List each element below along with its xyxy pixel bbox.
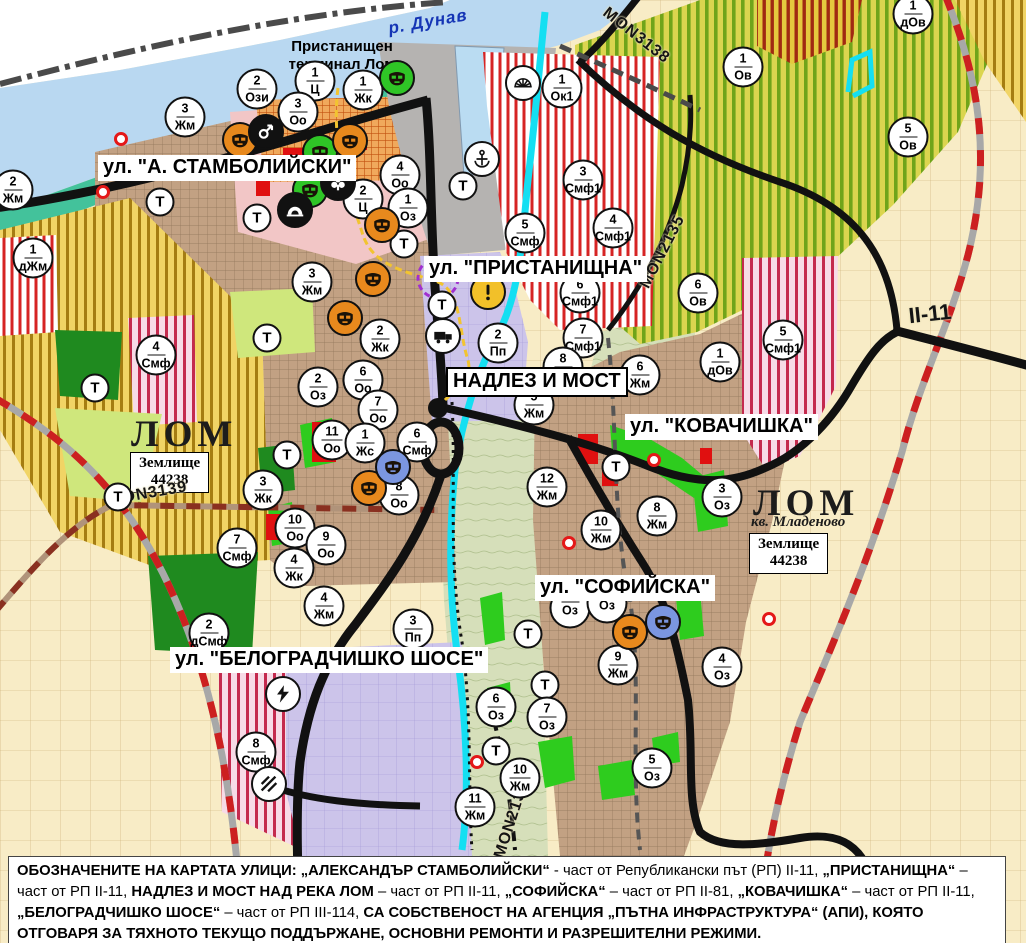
legend-text-segment: – част от РП III-114, (220, 905, 363, 921)
transformer-marker: Т (146, 188, 175, 217)
zone-marker: 5Ов (888, 117, 929, 158)
transformer-marker: Т (602, 453, 631, 482)
lightning-icon (265, 676, 301, 712)
zone-marker: 4Жм (304, 586, 345, 627)
street-label: ул. "БЕЛОГРАДЧИШКО ШОСЕ" (170, 647, 488, 673)
truck-icon (425, 318, 461, 354)
zone-marker: 3Жк (243, 470, 284, 511)
fan-icon (505, 65, 541, 101)
transformer-marker: Т (243, 204, 272, 233)
zone-marker: 2Оз (298, 367, 339, 408)
map-annotation-layer: 3Жм2Ози1Ц3Оо1Жк4Оо2Ц1Оз1Ок13Смф14Смф15См… (0, 0, 1026, 943)
street-label: ул. "ПРИСТАНИЩНА" (424, 256, 647, 282)
theater-mask-icon (364, 207, 400, 243)
tunnel-icon (277, 192, 313, 228)
zone-marker: 6Оз (476, 687, 517, 728)
legend-text-segment: НАДЛЕЗ И МОСТ НАД РЕКА ЛОМ (131, 884, 374, 900)
zone-marker: 3Жм (292, 262, 333, 303)
zone-marker: 3Пп (393, 609, 434, 650)
zone-marker: 12Жм (527, 467, 568, 508)
theater-mask-icon (375, 449, 411, 485)
transformer-marker: Т (81, 374, 110, 403)
street-label: ул. "А. СТАМБОЛИЙСКИ" (98, 155, 356, 181)
zone-marker: 3Оз (702, 477, 743, 518)
legend-text-segment: „КОВАЧИШКА“ (738, 884, 848, 900)
transformer-marker: Т (514, 620, 543, 649)
zone-marker: 7Оз (527, 697, 568, 738)
transformer-marker: Т (253, 324, 282, 353)
zone-marker: 11Жм (455, 787, 496, 828)
street-label: НАДЛЕЗ И МОСТ (446, 367, 628, 397)
transformer-marker: Т (531, 671, 560, 700)
legend-text-segment: „БЕЛОГРАДЧИШКО ШОСЕ“ (17, 905, 220, 921)
zone-marker: 1Ов (723, 47, 764, 88)
zone-marker: 3Жм (165, 97, 206, 138)
zone-marker: 10Жм (581, 510, 622, 551)
map-legend-note: ОБОЗНАЧЕНИТЕ НА КАРТАТА УЛИЦИ: „АЛЕКСАНД… (8, 856, 1006, 943)
legend-text-segment: - част от Републикански път (РП) II-11, (550, 863, 823, 879)
land-register-box: Землище44238 (749, 533, 828, 574)
theater-mask-icon (612, 614, 648, 650)
theater-mask-icon (355, 261, 391, 297)
point-of-interest-dot (762, 612, 776, 626)
zoning-map: 3Жм2Ози1Ц3Оо1Жк4Оо2Ц1Оз1Ок13Смф14Смф15См… (0, 0, 1026, 943)
anchor-icon (464, 141, 500, 177)
street-label: ул. "СОФИЙСКА" (535, 575, 715, 601)
legend-text-segment: „СОФИЙСКА“ (505, 884, 606, 900)
zone-marker: 6Ов (678, 273, 719, 314)
zone-marker: 10Жм (500, 758, 541, 799)
railway-crossing-icon (251, 766, 287, 802)
zone-marker: 4Смф1 (593, 208, 634, 249)
zone-marker: 1дОв (700, 342, 741, 383)
point-of-interest-dot (96, 185, 110, 199)
legend-text-segment: „ПРИСТАНИЩНА“ (823, 863, 956, 879)
zone-marker: 2Жк (360, 319, 401, 360)
zone-marker: 3Оо (278, 92, 319, 133)
road-number-label: MON3138 (599, 4, 673, 67)
zone-marker: 4Оз (702, 647, 743, 688)
theater-mask-icon (327, 300, 363, 336)
point-of-interest-dot (562, 536, 576, 550)
city-name-label: ЛОМ (131, 413, 237, 456)
zone-marker: 2Жм (0, 170, 34, 211)
zone-marker: 5Оз (632, 748, 673, 789)
legend-text-segment: – част от РП II-81, (606, 884, 738, 900)
zone-marker: 4Жк (274, 548, 315, 589)
point-of-interest-dot (647, 453, 661, 467)
legend-text-segment: ОБОЗНАЧЕНИТЕ НА КАРТАТА УЛИЦИ: „АЛЕКСАНД… (17, 863, 550, 879)
quarter-label: кв. Младеново (751, 514, 845, 531)
theater-mask-icon (379, 60, 415, 96)
legend-text-segment: – част от РП II-11, (848, 884, 975, 900)
transformer-marker: Т (449, 172, 478, 201)
zone-marker: 4Смф (136, 335, 177, 376)
transformer-marker: Т (104, 483, 133, 512)
legend-text-segment: – част от РП II-11, (374, 884, 505, 900)
theater-mask-icon (645, 604, 681, 640)
transformer-marker: Т (428, 291, 457, 320)
zone-marker: 1Ок1 (542, 68, 583, 109)
zone-marker: 9Жм (598, 645, 639, 686)
zone-marker: 1дОв (893, 0, 934, 35)
point-of-interest-dot (114, 132, 128, 146)
zone-marker: 1Жк (343, 70, 384, 111)
zone-marker: 2Ози (237, 69, 278, 110)
zone-marker: 8Жм (637, 496, 678, 537)
zone-marker: 3Смф1 (563, 160, 604, 201)
zone-marker: 5Смф (505, 213, 546, 254)
street-label: ул. "КОВАЧИШКА" (625, 414, 818, 440)
transformer-marker: Т (273, 441, 302, 470)
road-number-label: II-11 (907, 299, 952, 329)
zone-marker: 5Смф1 (763, 320, 804, 361)
theater-mask-icon (332, 123, 368, 159)
zone-marker: 7Смф (217, 528, 258, 569)
zone-marker: 1дЖм (13, 238, 54, 279)
compass-arrow-icon (248, 114, 284, 150)
zone-marker: 2Пп (478, 323, 519, 364)
